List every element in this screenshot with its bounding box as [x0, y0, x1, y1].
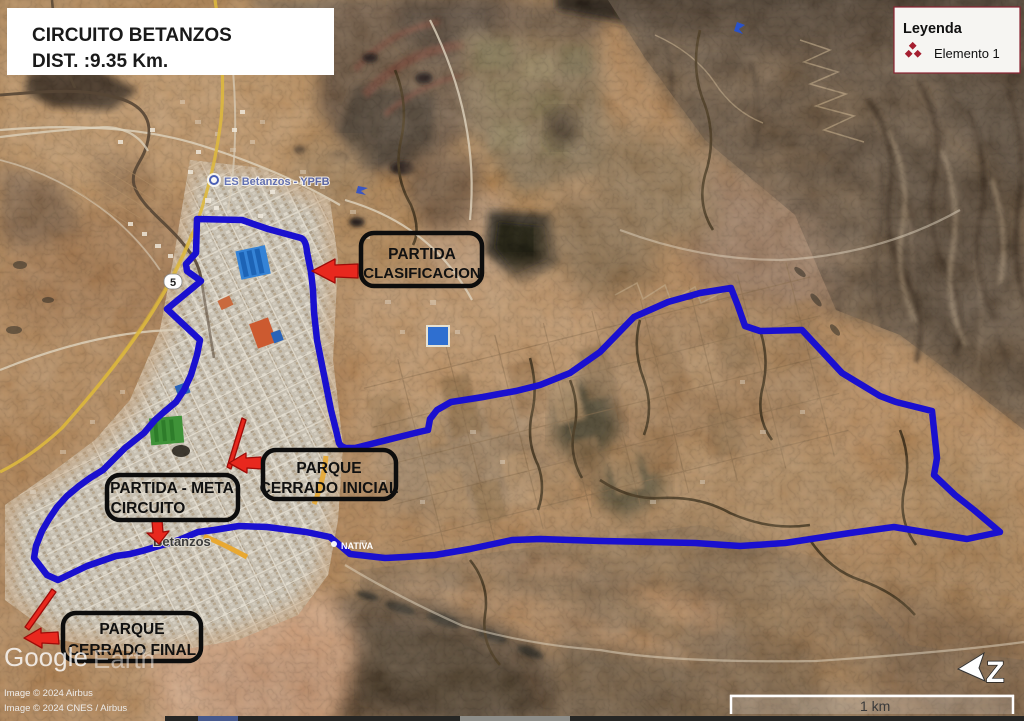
svg-text:Image © 2024 CNES / Airbus: Image © 2024 CNES / Airbus — [4, 703, 127, 714]
svg-text:Earth: Earth — [93, 644, 155, 674]
svg-text:Leyenda: Leyenda — [903, 21, 963, 37]
svg-text:5: 5 — [170, 277, 176, 289]
svg-text:CIRCUITO: CIRCUITO — [111, 500, 186, 517]
svg-text:DIST. :9.35 Km.: DIST. :9.35 Km. — [32, 51, 168, 72]
svg-text:CLASIFICACION: CLASIFICACION — [363, 265, 481, 282]
svg-text:PARTIDA: PARTIDA — [388, 246, 456, 263]
svg-text:ES Betanzos - YPFB: ES Betanzos - YPFB — [224, 176, 330, 188]
svg-text:Z: Z — [986, 656, 1004, 689]
svg-text:PARQUE: PARQUE — [99, 621, 164, 638]
svg-text:PARQUE: PARQUE — [296, 460, 361, 477]
svg-text:PARTIDA - META: PARTIDA - META — [110, 480, 234, 497]
svg-text:CERRADO INICIAL: CERRADO INICIAL — [260, 480, 399, 497]
svg-text:Elemento 1: Elemento 1 — [934, 46, 1000, 61]
svg-text:CIRCUITO BETANZOS: CIRCUITO BETANZOS — [32, 25, 232, 46]
svg-text:Image © 2024 Airbus: Image © 2024 Airbus — [4, 688, 93, 699]
svg-text:NATIVA: NATIVA — [341, 541, 374, 551]
svg-text:1 km: 1 km — [860, 698, 890, 714]
svg-text:Google: Google — [4, 642, 88, 672]
